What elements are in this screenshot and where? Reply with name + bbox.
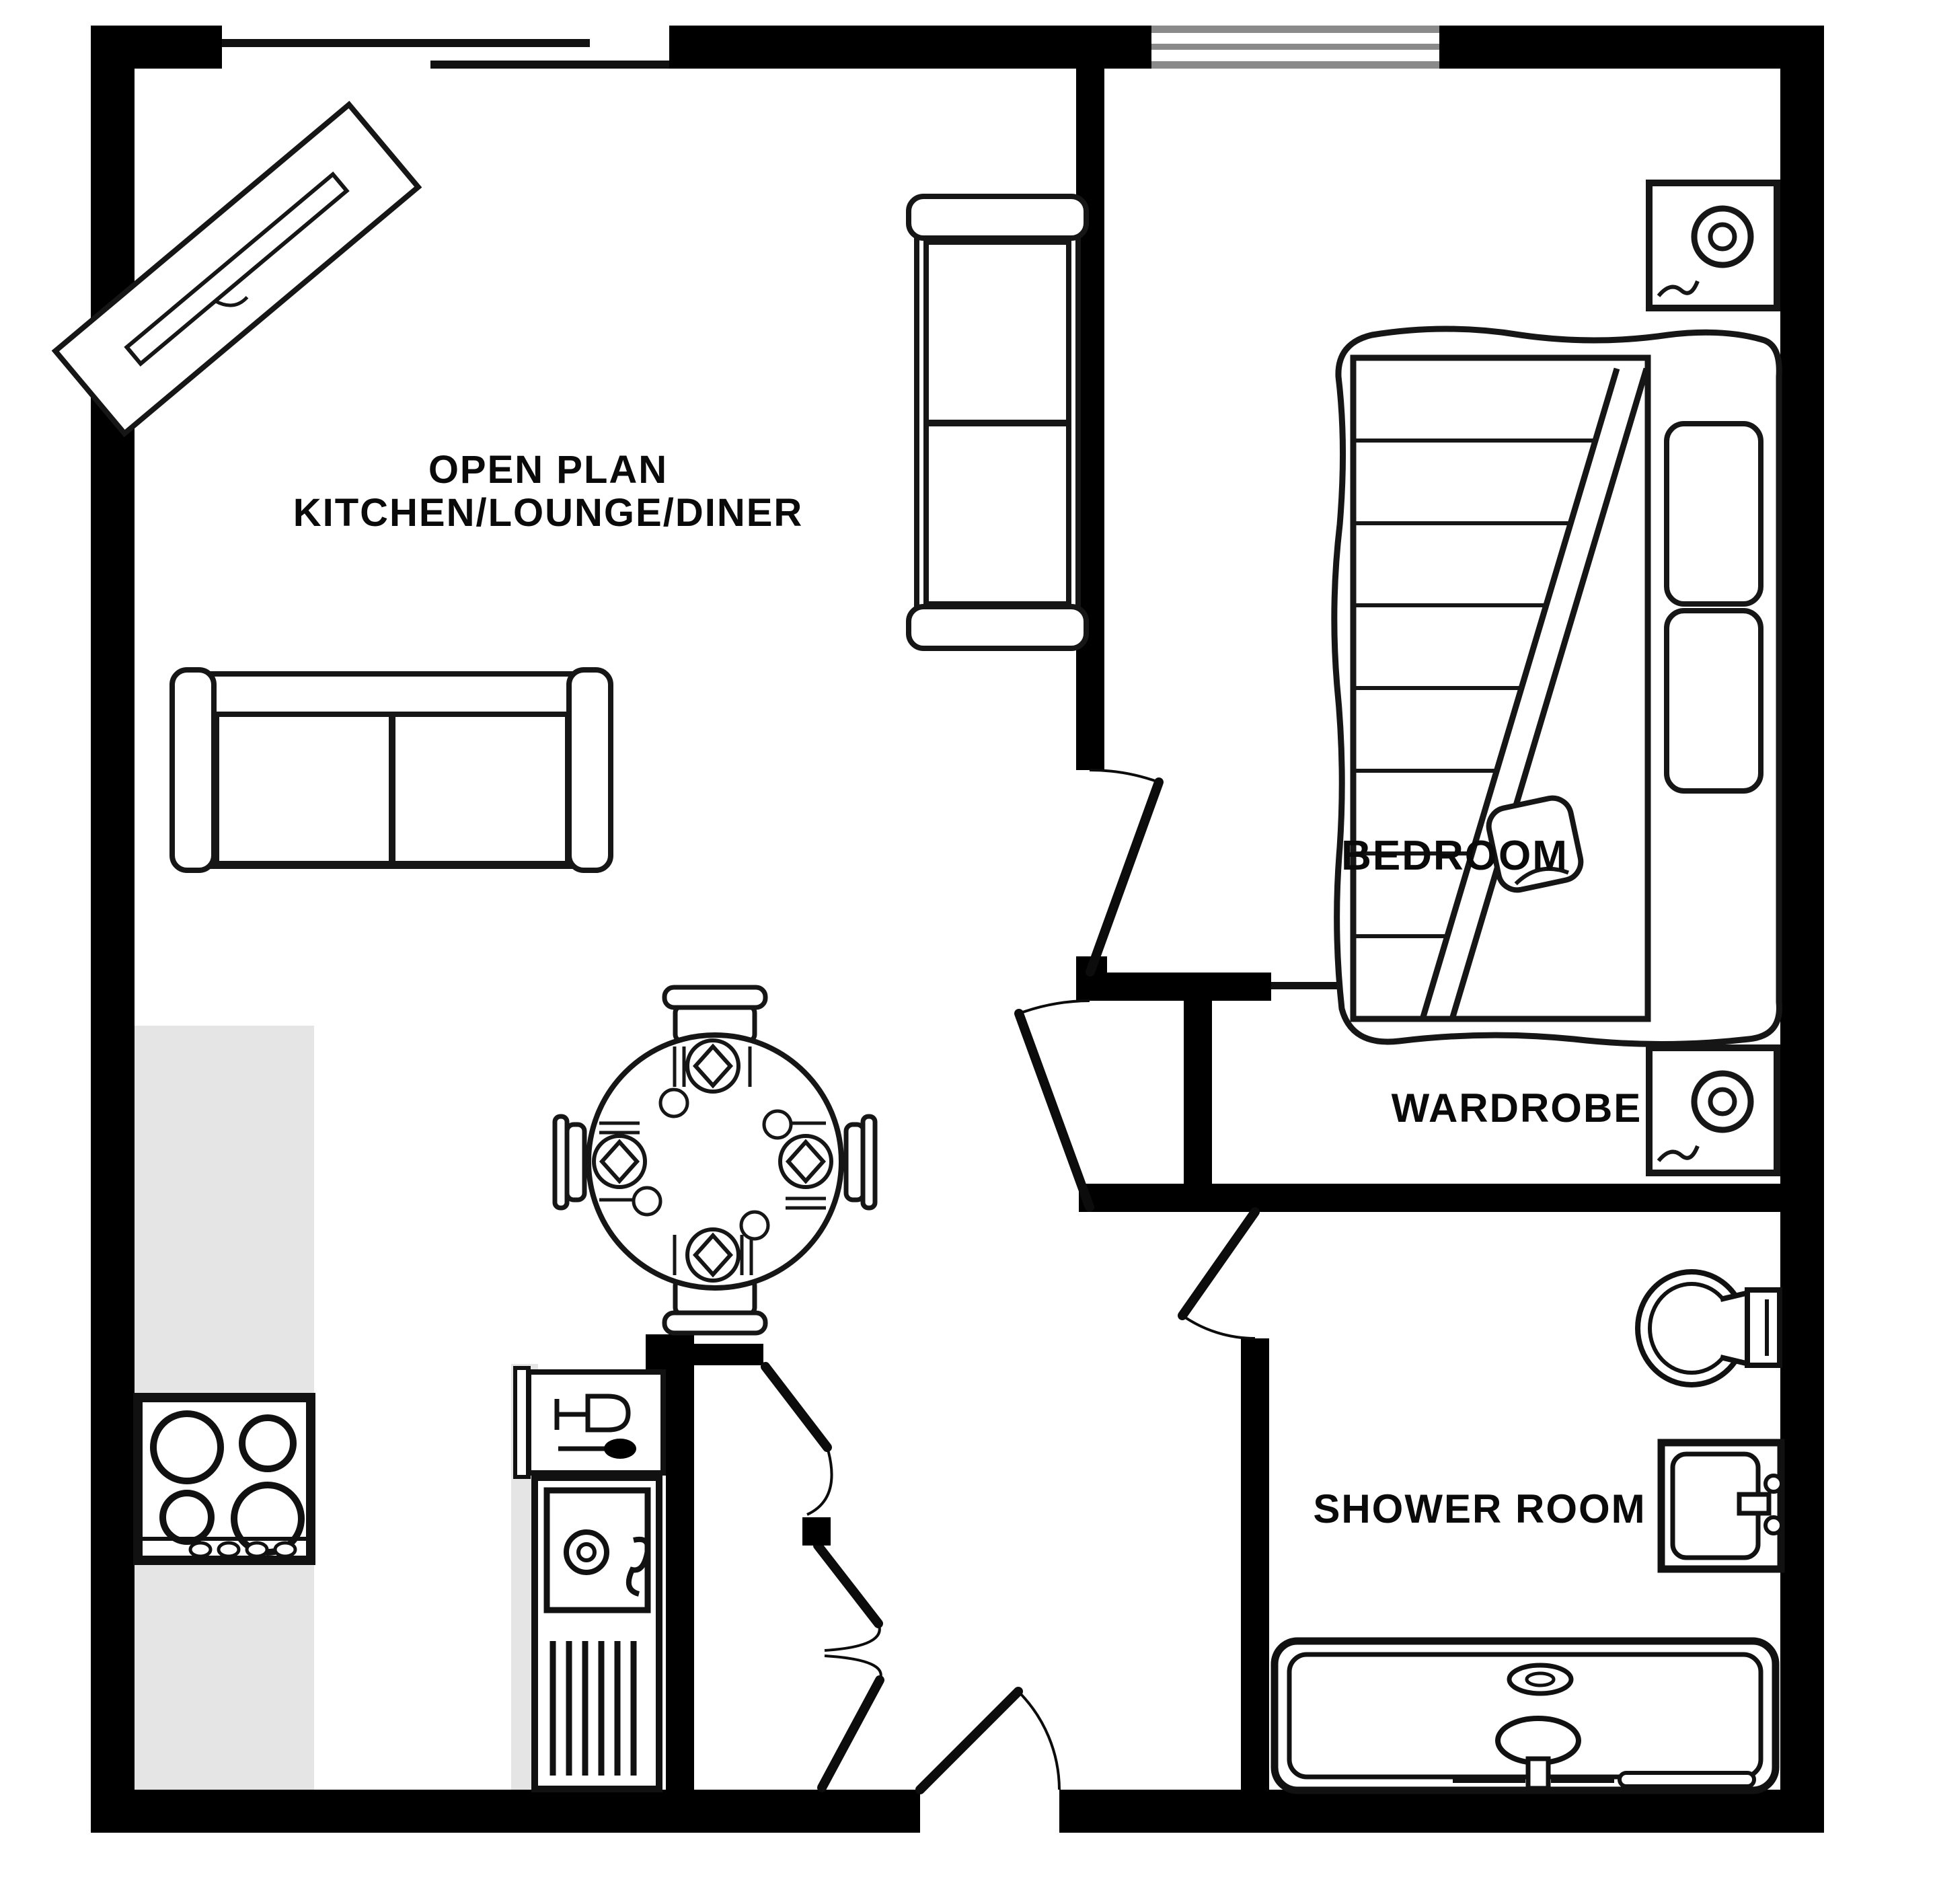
bedroom-door	[1090, 770, 1159, 972]
burner-1	[153, 1414, 221, 1481]
burner-2	[242, 1418, 293, 1469]
wall-top-seg3	[1439, 26, 1824, 69]
chair-right-back	[863, 1116, 875, 1208]
entrance-door-arc	[1018, 1691, 1059, 1790]
sofa-v-armrest-bottom	[909, 607, 1086, 648]
sink-drain-inner-icon	[578, 1544, 595, 1560]
entrance-door	[920, 1691, 1059, 1790]
wall-bottom-seg1	[91, 1790, 920, 1833]
knob-2	[219, 1543, 239, 1556]
sofa-h-armrest-right	[569, 670, 611, 870]
bedroom-door-arc	[1090, 770, 1159, 782]
lamp-inner-icon	[1710, 225, 1735, 249]
bifold-hinge-block	[802, 1517, 831, 1546]
sofa-v-cushion-2	[926, 424, 1069, 604]
glass-icon	[741, 1212, 768, 1239]
wall-hall-wardrobe	[1184, 1001, 1212, 1184]
window-frame-top	[1151, 26, 1439, 33]
bath-tap-stem	[1528, 1759, 1548, 1788]
wall-shower-left	[1241, 1338, 1269, 1790]
shower-door-arc	[1182, 1316, 1255, 1338]
floor-plan: OPEN PLAN KITCHEN/LOUNGE/DINER BEDROOM W…	[0, 0, 1935, 1904]
dishwasher	[515, 1368, 663, 1477]
burner-3	[163, 1493, 211, 1541]
sofa-vertical	[909, 196, 1086, 648]
chair-bottom-back	[665, 1313, 765, 1333]
wall-right	[1780, 26, 1824, 1833]
bath-tap-icon	[1498, 1718, 1579, 1763]
bifold-arc-1	[807, 1447, 832, 1515]
basin-tap-knob-1	[1766, 1476, 1782, 1492]
striped-blanket	[1353, 358, 1648, 1019]
lamp-inner-icon	[1710, 1090, 1735, 1114]
label-open-plan-line1: OPEN PLAN	[428, 448, 668, 492]
chair-top-back	[665, 987, 765, 1007]
pillow-2	[1667, 611, 1761, 791]
double-bed	[1334, 329, 1780, 1044]
knob-1	[190, 1543, 211, 1556]
window-frame-mid	[1151, 44, 1439, 50]
wall-top-seg2	[669, 26, 1151, 69]
hob	[138, 1398, 311, 1560]
entrance-door-leaf	[920, 1691, 1018, 1790]
bath-drain-inner-icon	[1527, 1673, 1554, 1685]
wall-wardrobe-bottom	[1079, 1184, 1781, 1212]
glass-icon	[634, 1188, 660, 1215]
bath-tray	[1620, 1773, 1754, 1786]
doors	[765, 770, 1255, 1790]
chair-left	[567, 1125, 584, 1200]
bath	[1275, 1641, 1776, 1790]
toilet-cistern	[1747, 1290, 1780, 1365]
wall-bottom-seg2	[1059, 1790, 1824, 1833]
patio-line-inner	[430, 61, 669, 69]
bifold-leaf-1	[765, 1367, 827, 1447]
window-icon	[1151, 26, 1439, 69]
knob-4	[275, 1543, 295, 1556]
patio-line-outer	[222, 39, 590, 47]
sofa-horizontal	[172, 670, 611, 870]
label-open-plan-line2: KITCHEN/LOUNGE/DINER	[293, 491, 804, 535]
sofa-v-armrest-top	[909, 196, 1086, 238]
closet-bifold-doors	[765, 1367, 881, 1788]
label-bedroom: BEDROOM	[1341, 833, 1568, 879]
shower-door-leaf	[1182, 1212, 1255, 1316]
hall-door-leaf	[1019, 1014, 1090, 1207]
hall-door-arc	[1019, 1001, 1090, 1014]
hall-door	[1019, 1001, 1090, 1207]
wall-bedroom-bottom	[1076, 973, 1271, 1001]
chair-left-back	[555, 1116, 567, 1208]
bifold-arc-2	[825, 1624, 880, 1650]
burner-4	[234, 1485, 301, 1552]
knob-3	[247, 1543, 267, 1556]
dishwasher-body	[529, 1372, 663, 1473]
toilet-neck-fill	[1720, 1293, 1749, 1364]
nightstand-bottom	[1649, 1048, 1777, 1173]
patio-opening	[222, 39, 669, 69]
sofa-h-cushion-2	[393, 714, 568, 864]
label-shower-room: SHOWER ROOM	[1313, 1486, 1646, 1531]
basin-tap-knob-2	[1766, 1517, 1782, 1533]
bedroom-door-leaf	[1090, 782, 1159, 972]
sofa-h-cushion-1	[217, 714, 391, 864]
floor-plan-page: OPEN PLAN KITCHEN/LOUNGE/DINER BEDROOM W…	[0, 0, 1935, 1904]
nightstand-top	[1649, 183, 1777, 308]
bifold-arc-3	[825, 1656, 881, 1680]
bifold-leaf-2	[818, 1546, 878, 1624]
toilet	[1638, 1272, 1780, 1385]
wall-top-seg1	[91, 26, 222, 69]
sofa-v-cushion-1	[926, 242, 1069, 422]
basin-tap-icon	[1739, 1494, 1769, 1513]
spoon-bowl-icon	[604, 1439, 636, 1459]
pillow-1	[1667, 424, 1761, 604]
label-wardrobe: WARDROBE	[1392, 1086, 1642, 1131]
kitchen-sink	[535, 1478, 659, 1789]
window-frame-bottom	[1151, 61, 1439, 69]
glass-icon	[660, 1090, 687, 1116]
shower-door	[1182, 1212, 1255, 1338]
wall-closet-left	[666, 1364, 694, 1790]
basin	[1661, 1443, 1782, 1569]
bifold-leaf-3	[822, 1680, 880, 1788]
dining-set	[555, 987, 875, 1333]
glass-icon	[764, 1111, 791, 1138]
sofa-h-armrest-left	[172, 670, 214, 870]
